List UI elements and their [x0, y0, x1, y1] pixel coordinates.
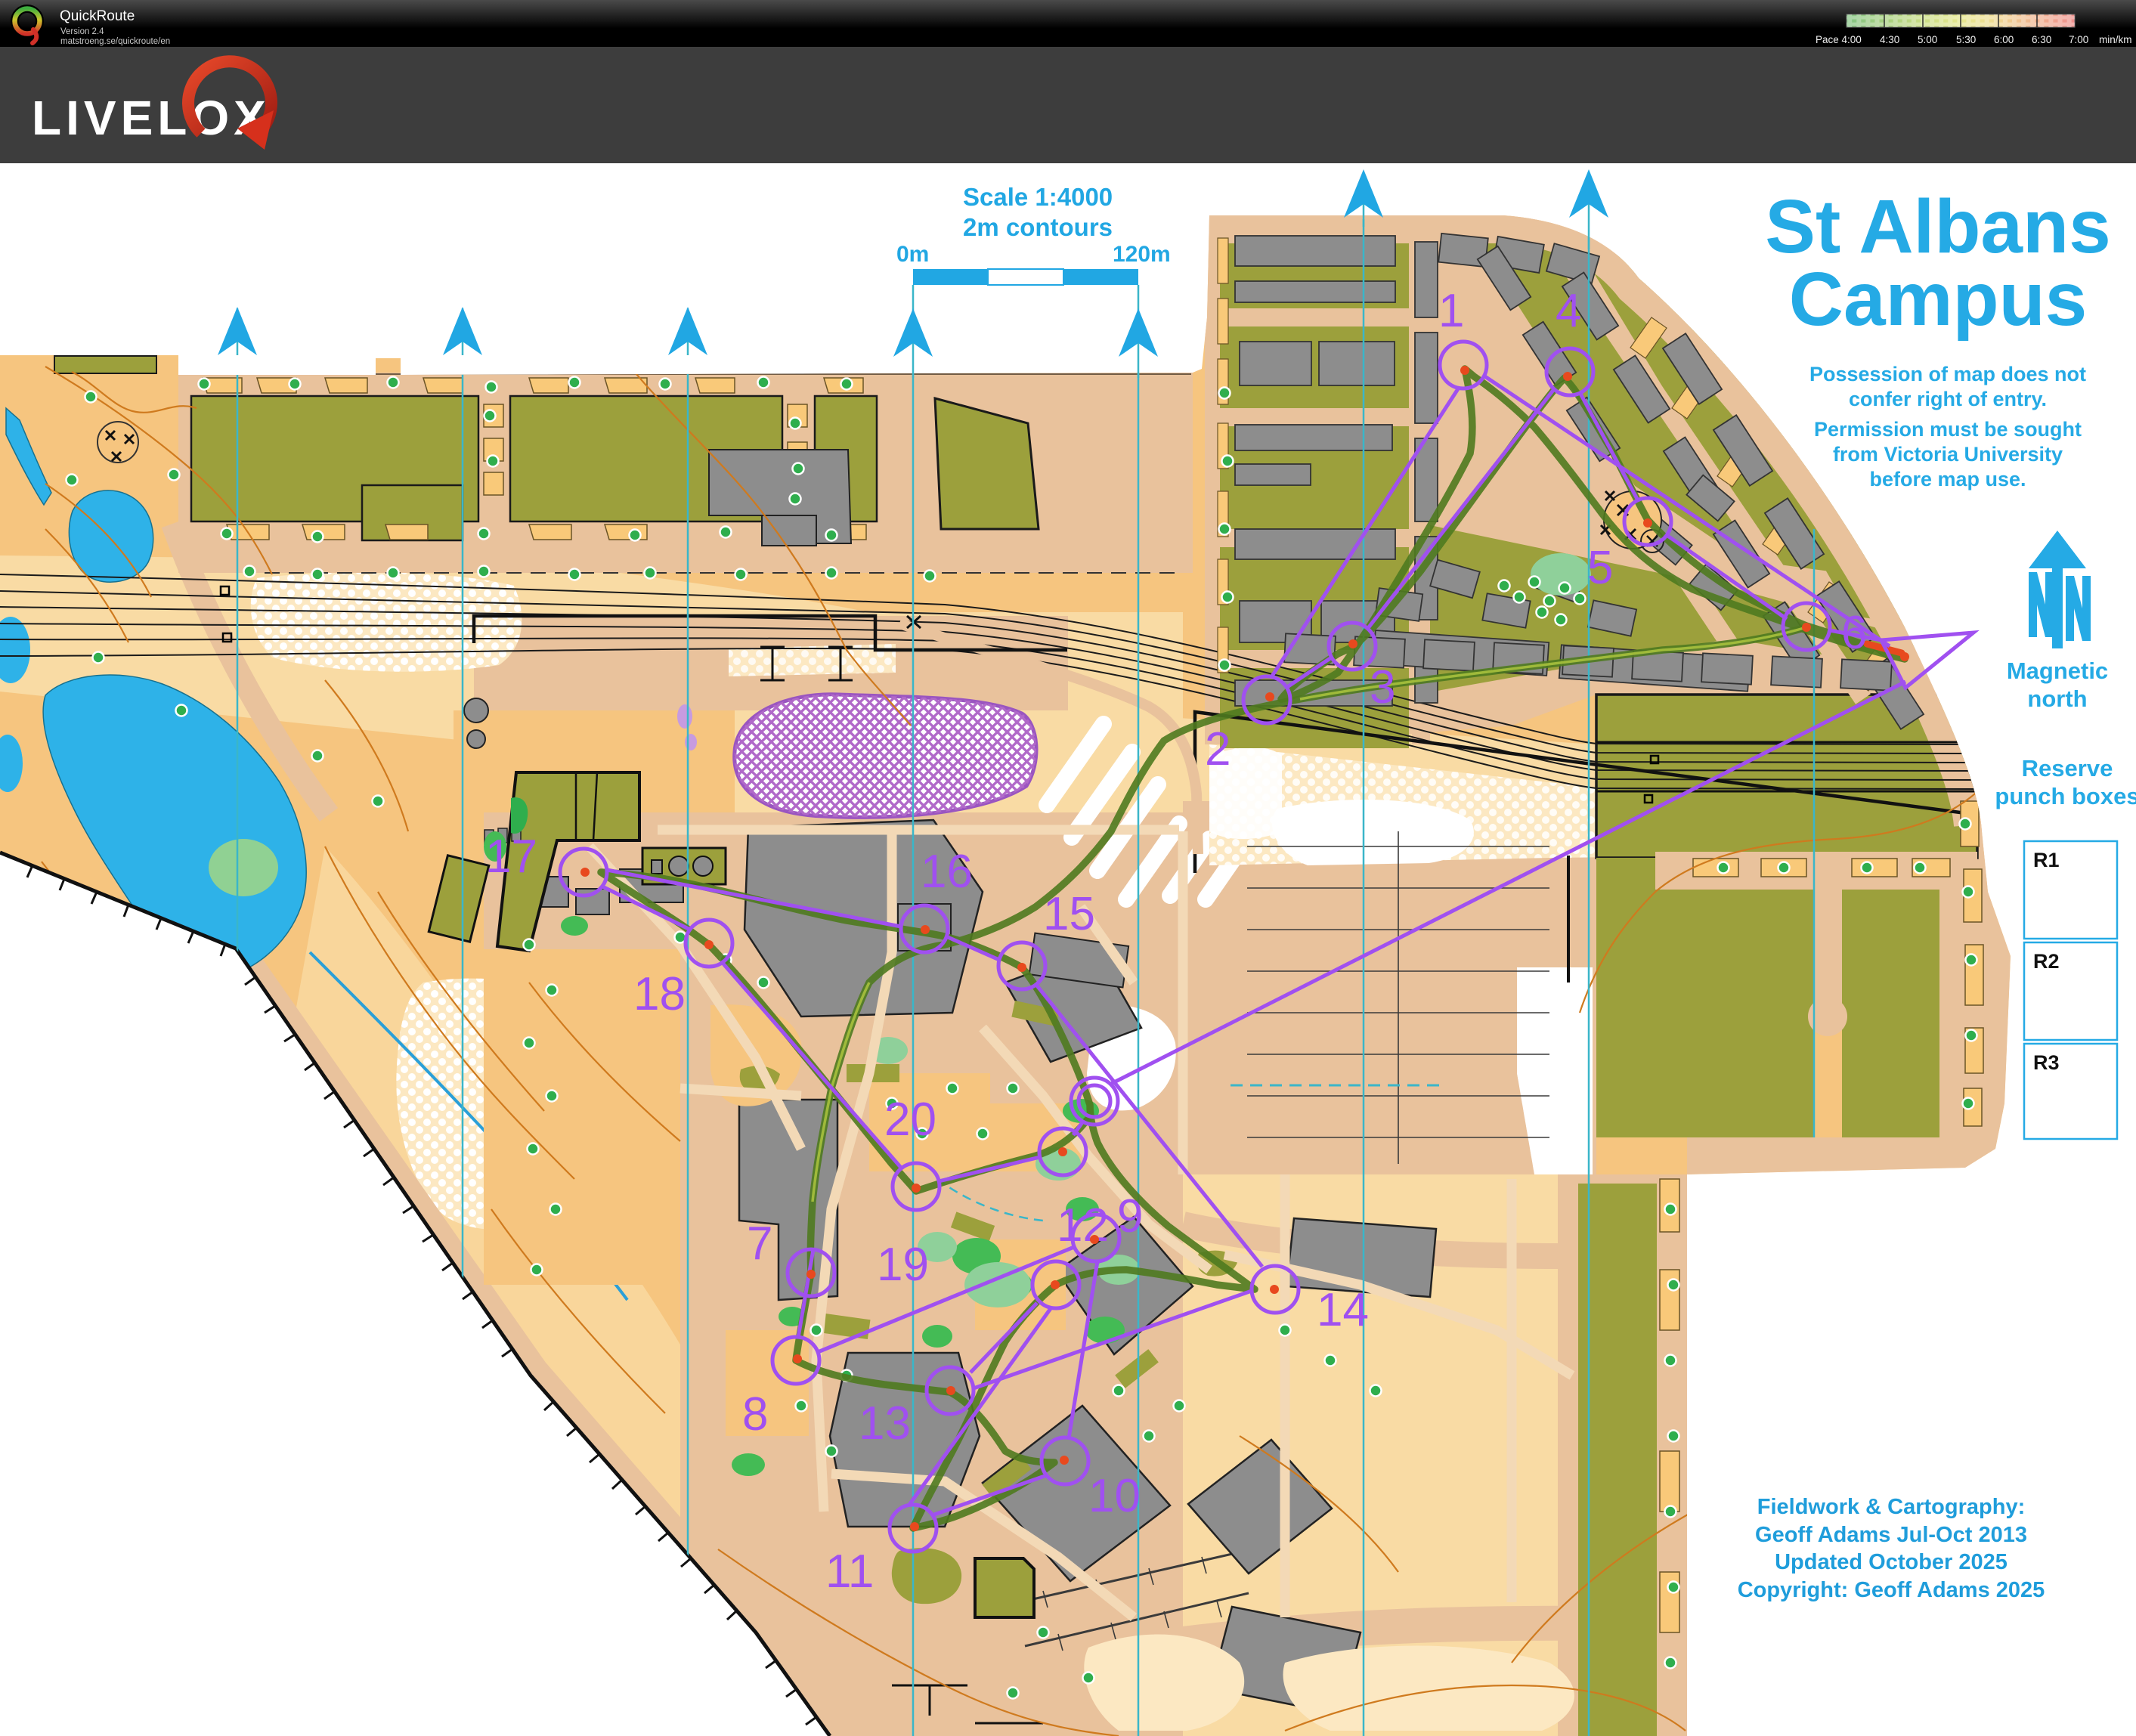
svg-text:19: 19: [877, 1239, 929, 1291]
svg-text:R3: R3: [2033, 1051, 2060, 1074]
svg-text:10: 10: [1088, 1470, 1141, 1522]
svg-text:Campus: Campus: [1789, 257, 2088, 342]
svg-text:0m: 0m: [896, 242, 929, 267]
svg-text:15: 15: [1043, 888, 1095, 940]
svg-text:6: 6: [1841, 607, 1867, 659]
svg-text:2m contours: 2m contours: [963, 213, 1113, 241]
svg-text:8: 8: [742, 1388, 768, 1440]
svg-text:6:30: 6:30: [2032, 34, 2051, 45]
svg-text:QuickRoute: QuickRoute: [60, 8, 135, 24]
svg-text:R1: R1: [2033, 849, 2060, 871]
svg-text:120m: 120m: [1113, 242, 1171, 267]
svg-text:5:30: 5:30: [1956, 34, 1976, 45]
svg-text:Geoff Adams Jul-Oct 2013: Geoff Adams Jul-Oct 2013: [1755, 1523, 2027, 1547]
svg-text:5:00: 5:00: [1918, 34, 1937, 45]
svg-text:1: 1: [1438, 285, 1464, 337]
svg-text:3: 3: [1370, 661, 1395, 713]
svg-text:4:30: 4:30: [1880, 34, 1899, 45]
svg-text:13: 13: [859, 1397, 911, 1450]
svg-text:Possession of map does not: Possession of map does not: [1809, 363, 2086, 385]
svg-text:2: 2: [1205, 723, 1231, 775]
svg-text:north: north: [2027, 685, 2087, 712]
svg-text:17: 17: [485, 831, 537, 883]
svg-text:matstroeng.se/quickroute/en: matstroeng.se/quickroute/en: [60, 37, 170, 46]
svg-text:9: 9: [1117, 1190, 1143, 1242]
svg-text:7: 7: [747, 1218, 772, 1270]
svg-text:Reserve: Reserve: [2022, 755, 2113, 781]
svg-text:14: 14: [1317, 1284, 1369, 1336]
svg-text:6:00: 6:00: [1994, 34, 2014, 45]
svg-text:4: 4: [1556, 285, 1581, 337]
svg-text:min/km: min/km: [2099, 34, 2132, 45]
svg-text:Permission must be sought: Permission must be sought: [1814, 418, 2082, 441]
svg-text:confer right of entry.: confer right of entry.: [1849, 388, 2047, 410]
svg-text:Magnetic: Magnetic: [2007, 658, 2108, 684]
svg-text:11: 11: [825, 1546, 874, 1598]
svg-text:12: 12: [1057, 1199, 1109, 1252]
svg-text:Updated October 2025: Updated October 2025: [1775, 1550, 2008, 1574]
svg-text:Copyright: Geoff Adams 2025: Copyright: Geoff Adams 2025: [1738, 1578, 2045, 1602]
svg-text:before map use.: before map use.: [1869, 468, 2026, 490]
svg-text:Version 2.4: Version 2.4: [60, 27, 104, 36]
svg-text:from Victoria University: from Victoria University: [1833, 443, 2063, 466]
svg-text:R2: R2: [2033, 950, 2060, 973]
svg-text:5: 5: [1587, 542, 1613, 594]
svg-text:Fieldwork & Cartography:: Fieldwork & Cartography:: [1757, 1495, 2026, 1519]
svg-text:Pace 4:00: Pace 4:00: [1816, 34, 1862, 45]
svg-text:Scale 1:4000: Scale 1:4000: [963, 183, 1113, 211]
svg-text:7:00: 7:00: [2069, 34, 2088, 45]
svg-text:LIVELOX: LIVELOX: [32, 91, 271, 145]
svg-text:16: 16: [921, 846, 973, 898]
svg-text:punch boxes: punch boxes: [1995, 783, 2136, 809]
svg-text:18: 18: [633, 968, 686, 1020]
svg-text:20: 20: [884, 1094, 936, 1146]
